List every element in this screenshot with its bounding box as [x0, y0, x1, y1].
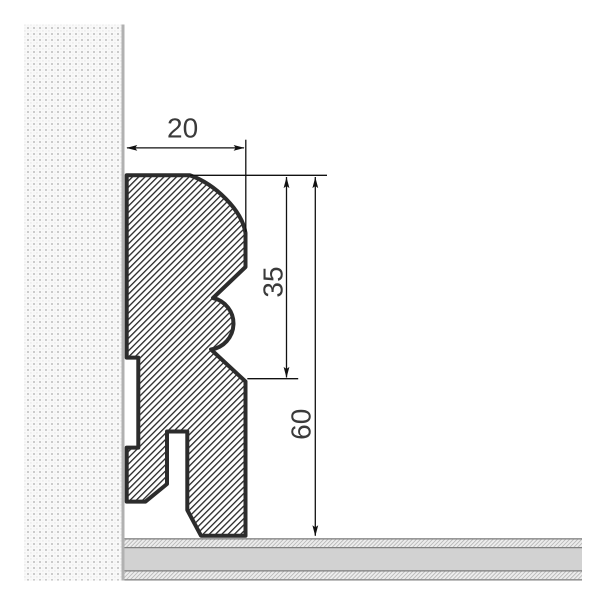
svg-text:35: 35	[258, 266, 289, 297]
svg-text:20: 20	[167, 113, 198, 144]
svg-text:60: 60	[286, 409, 317, 440]
